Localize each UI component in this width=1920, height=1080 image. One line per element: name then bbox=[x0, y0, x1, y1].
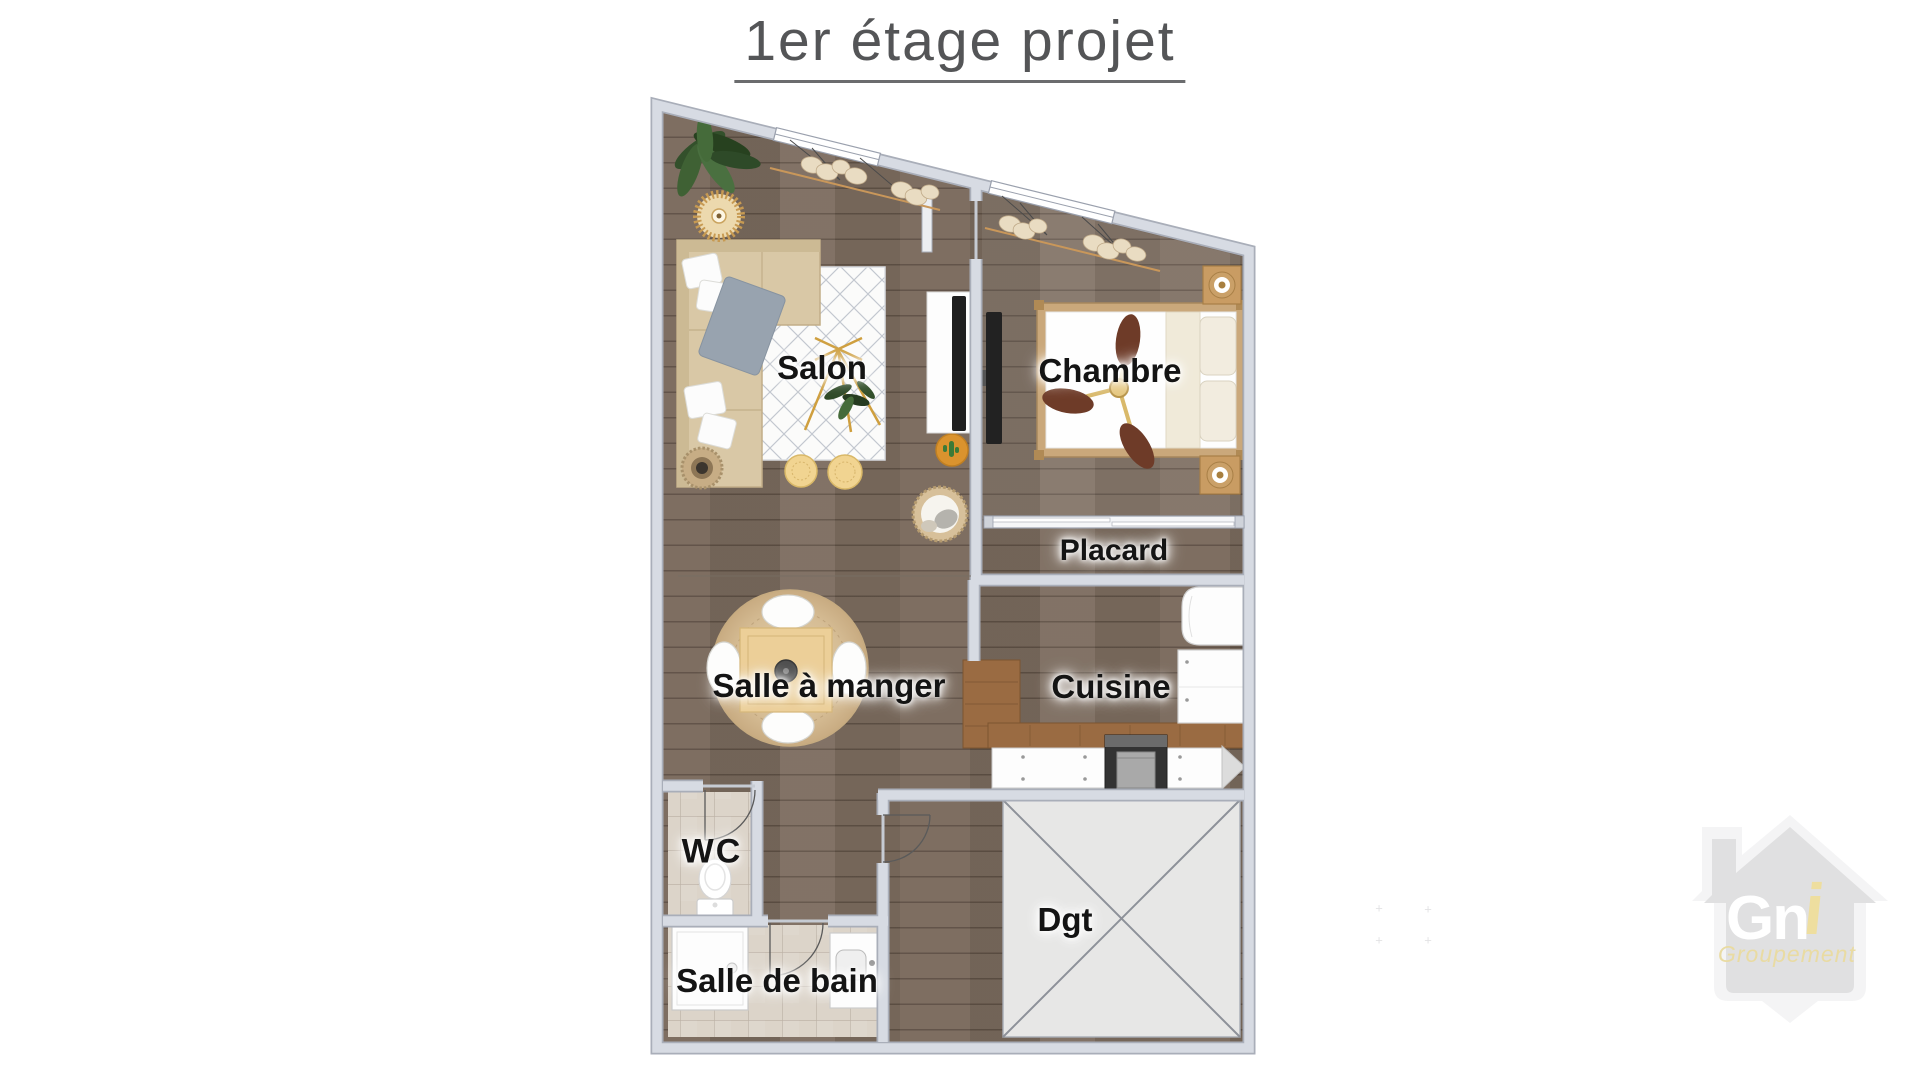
rattan-pendant-icon bbox=[697, 194, 741, 238]
cactus-rug-icon bbox=[936, 434, 968, 466]
ghost-plus-mark: + bbox=[1375, 933, 1383, 948]
curtain-icon bbox=[770, 140, 1160, 271]
floor-plan-page: 1er étage projet bbox=[0, 0, 1920, 1080]
stove-icon bbox=[1105, 735, 1167, 790]
gni-watermark: Gn i Groupement bbox=[1690, 815, 1910, 1035]
room-label-salle-de-bain: Salle de bain bbox=[676, 962, 878, 1000]
watermark-subtitle: Groupement bbox=[1718, 941, 1856, 968]
pet-bed-icon bbox=[913, 487, 967, 541]
tv-icon bbox=[927, 292, 970, 433]
ghost-plus-mark: + bbox=[1375, 901, 1383, 916]
room-label-dgt: Dgt bbox=[1038, 901, 1093, 939]
room-label-salon: Salon bbox=[777, 349, 867, 387]
fridge-icon bbox=[1178, 587, 1244, 723]
sliding-closet-door-icon bbox=[984, 516, 1244, 528]
room-label-chambre: Chambre bbox=[1038, 352, 1181, 390]
floor-plan: Salon Chambre Placard Salle à manger Cui… bbox=[0, 0, 1920, 1080]
room-label-salle-a-manger: Salle à manger bbox=[713, 667, 946, 705]
ghost-plus-mark: + bbox=[1424, 902, 1432, 917]
room-label-wc: WC bbox=[682, 833, 743, 872]
floor-plan-drawing bbox=[0, 0, 1920, 1080]
ghost-plus-mark: + bbox=[1424, 933, 1432, 948]
room-label-cuisine: Cuisine bbox=[1051, 668, 1170, 706]
round-pouf-icon bbox=[682, 448, 722, 488]
room-label-placard: Placard bbox=[1060, 534, 1168, 568]
